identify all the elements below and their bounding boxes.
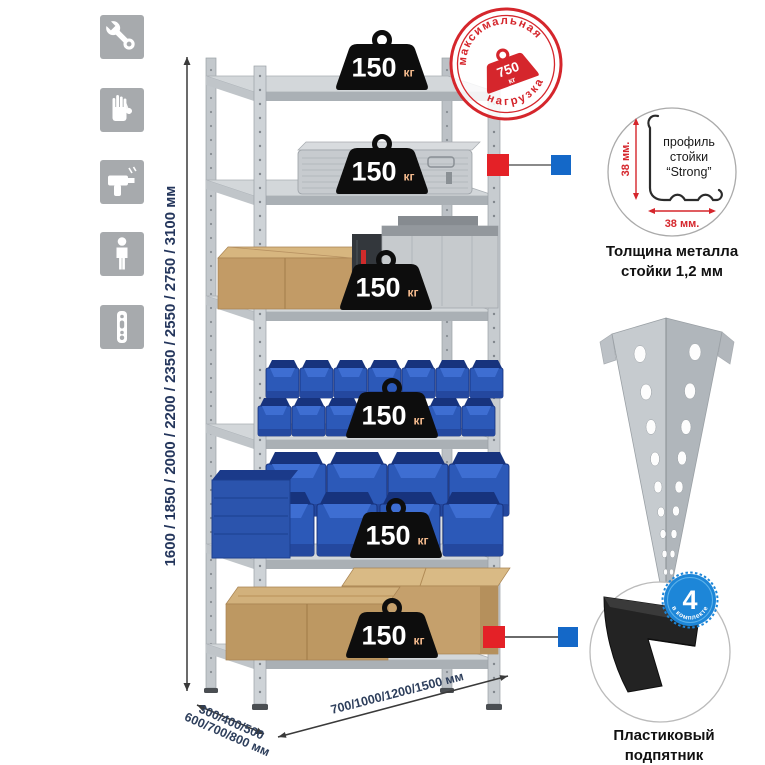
included-count: 4 [682,585,697,615]
shelf-load-badge: 150 кг [336,33,428,91]
foot-cap [252,704,268,710]
foot-caption-line2: подпятник [625,747,704,764]
profile-caption-line2: стойки 1,2 мм [621,263,723,280]
product-infographic: 1600 / 1850 / 2000 / 2200 / 2350 / 2550 … [0,0,765,765]
load-unit: кг [403,66,414,80]
profile-callout: 38 мм. 38 мм. профиль стойки “Strong” [608,108,736,236]
connector-red-square [483,626,505,648]
rack-post-back-left [206,58,216,688]
profile-title-line2: стойки [670,150,708,164]
foot-cap [204,688,218,693]
included-count-badge: 4 в комплекте [663,573,718,628]
load-unit: кг [413,414,424,428]
profile-title-line3: “Strong” [666,165,711,179]
perforated-post-icon [100,305,144,349]
cardboard-box-small [218,247,362,309]
load-unit: кг [403,170,414,184]
load-value: 150 [351,53,396,83]
load-value: 150 [361,401,406,431]
foot-connector [483,626,578,648]
profile-connector [487,154,571,176]
profile-caption-line1: Толщина металла [606,243,739,260]
connector-blue-square [558,627,578,647]
profile-vertical-dim-label: 38 мм. [620,142,632,177]
gloves-icon [100,88,144,132]
shelving-rack-diagram: 1600 / 1850 / 2000 / 2200 / 2350 / 2550 … [0,0,765,765]
profile-horizontal-dim-label: 38 мм. [665,218,700,230]
load-unit: кг [417,534,428,548]
connector-red-square [487,154,509,176]
profile-title-line1: профиль [663,135,715,149]
height-dimension-label: 1600 / 1850 / 2000 / 2200 / 2350 / 2550 … [162,186,179,567]
sidebar-icons [100,15,144,349]
foot-caption-line1: Пластиковый [613,727,714,744]
height-dimension: 1600 / 1850 / 2000 / 2200 / 2350 / 2550 … [162,57,191,691]
angle-post-image [600,318,734,614]
load-value: 150 [355,273,400,303]
load-value: 150 [361,621,406,651]
load-unit: кг [407,286,418,300]
wrench-icon [100,15,144,59]
drill-icon [100,160,144,204]
blue-crate [212,470,298,558]
width-dimension: 700/1000/1200/1500 мм [278,669,508,738]
connector-blue-square [551,155,571,175]
person-icon [100,232,144,276]
plastic-foot-callout: 4 в комплекте [590,573,730,723]
load-value: 150 [365,521,410,551]
load-unit: кг [413,634,424,648]
load-value: 150 [351,157,396,187]
max-load-stamp: максимальная нагрузка 750 кг [436,0,577,134]
foot-cap [486,704,502,710]
